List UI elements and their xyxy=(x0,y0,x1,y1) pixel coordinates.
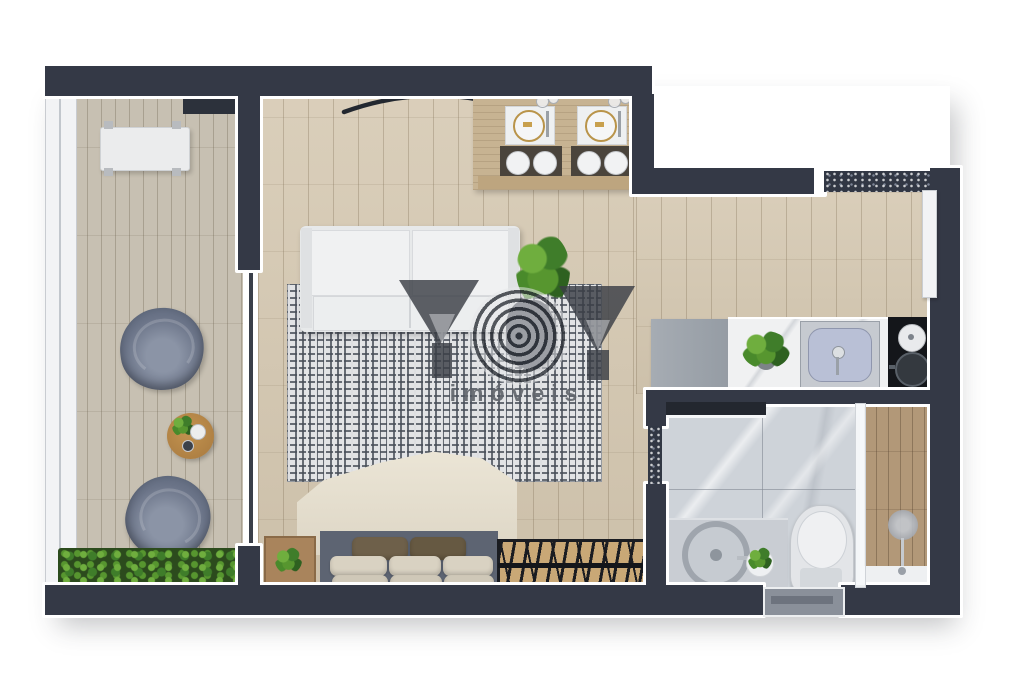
armchair-cushion xyxy=(133,481,208,554)
nightstand-plant xyxy=(275,547,302,574)
vessel-sink-drain xyxy=(710,549,722,561)
bathroom-door-leaf xyxy=(666,402,766,415)
bench-leg xyxy=(172,121,181,129)
wall-balcony-partition-bottom xyxy=(238,546,260,588)
sofa-back-cushion xyxy=(412,230,510,296)
entry-door-leaf xyxy=(922,190,937,298)
stool-seat xyxy=(506,151,530,175)
bathroom-tile-seam-h xyxy=(663,489,859,490)
wall-kitchen-top xyxy=(632,168,824,194)
plant-pot-large xyxy=(506,300,554,368)
pillow-cream xyxy=(330,556,387,576)
bench-leg xyxy=(104,121,113,129)
counter-cabinet-front xyxy=(478,176,634,189)
shower-glass-partition xyxy=(855,403,866,588)
dark-pot xyxy=(895,352,930,387)
balcony-bench-table xyxy=(100,127,190,171)
sink-faucet-stem xyxy=(836,357,839,375)
stool-seat xyxy=(604,151,628,175)
toilet-lid xyxy=(797,511,847,569)
wall-bathroom-left-upper xyxy=(646,390,666,426)
table-cup-small xyxy=(182,440,194,452)
shower-head xyxy=(888,510,918,540)
wall-bottom-left xyxy=(45,585,763,615)
floor-plan: imóveis xyxy=(0,0,1024,687)
pillow-cream xyxy=(389,556,441,576)
sofa-back-cushion xyxy=(310,230,410,296)
cutlery-2 xyxy=(618,111,621,137)
pot-handle xyxy=(889,365,895,369)
bathroom-door-threshold xyxy=(648,426,662,484)
table-cup xyxy=(190,424,206,440)
wall-balcony-partition-top xyxy=(238,94,260,270)
shower-arm xyxy=(901,538,904,566)
balcony-dark-mat xyxy=(183,97,238,114)
sliding-glass-door xyxy=(249,266,253,550)
sofa-seat xyxy=(313,296,509,331)
shower-floor xyxy=(864,402,932,568)
shower-valve xyxy=(898,567,906,575)
cutlery-1 xyxy=(546,111,549,137)
bench-leg xyxy=(172,168,181,176)
entrance-jamb xyxy=(814,165,824,197)
pot-lid-knob xyxy=(908,334,914,340)
plate-1-food xyxy=(523,122,532,127)
plate-2-food xyxy=(595,122,604,127)
counter-plant xyxy=(742,331,790,369)
sofa-seat-split xyxy=(409,297,411,328)
railing-glass-line xyxy=(59,82,61,596)
bench-leg xyxy=(104,168,113,176)
refrigerator-top xyxy=(651,319,728,390)
wall-bottom-right xyxy=(841,585,960,615)
stool-seat xyxy=(533,151,557,175)
bathroom-window-vent xyxy=(771,596,833,604)
potted-plant xyxy=(516,232,570,308)
armchair-cushion xyxy=(130,315,199,380)
entrance-doormat xyxy=(824,171,930,192)
balcony-glass-railing xyxy=(45,78,77,602)
wall-bathroom-left-lower xyxy=(646,484,666,588)
pillow-cream xyxy=(443,556,493,576)
bathroom-door-edge xyxy=(666,415,766,418)
wall-top xyxy=(45,66,652,96)
vanity-plant xyxy=(748,547,772,571)
stool-seat xyxy=(577,151,601,175)
sofa-arm-left xyxy=(301,228,312,328)
